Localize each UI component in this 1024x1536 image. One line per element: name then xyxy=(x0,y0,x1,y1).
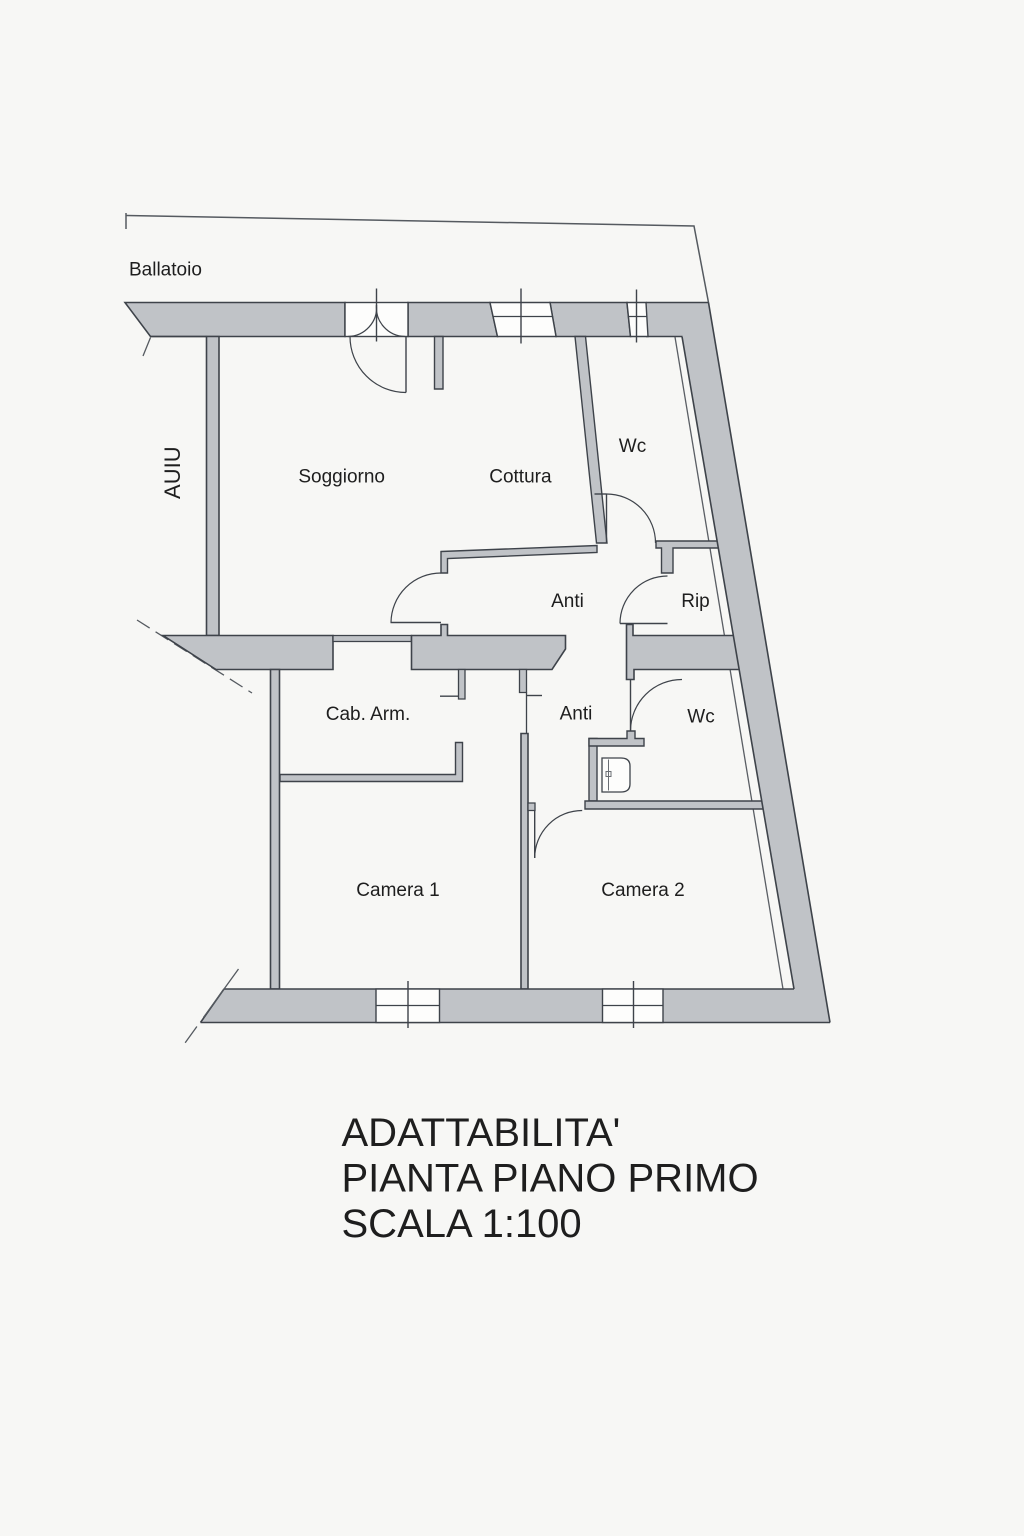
svg-text:Camera 2: Camera 2 xyxy=(601,880,684,901)
svg-text:Cottura: Cottura xyxy=(489,467,552,488)
svg-text:Anti: Anti xyxy=(551,591,584,612)
svg-text:Ballatoio: Ballatoio xyxy=(129,260,202,281)
svg-text:Cab. Arm.: Cab. Arm. xyxy=(326,704,410,725)
svg-text:Anti: Anti xyxy=(560,704,593,725)
svg-text:SCALA 1:100: SCALA 1:100 xyxy=(342,1202,582,1246)
svg-text:Soggiorno: Soggiorno xyxy=(298,467,385,488)
svg-text:ADATTABILITA': ADATTABILITA' xyxy=(342,1111,621,1155)
svg-text:Camera 1: Camera 1 xyxy=(356,880,439,901)
svg-text:Rip: Rip xyxy=(681,591,710,612)
svg-text:Wc: Wc xyxy=(687,707,714,728)
svg-text:Wc: Wc xyxy=(619,436,646,457)
svg-text:PIANTA PIANO PRIMO: PIANTA PIANO PRIMO xyxy=(342,1157,759,1201)
svg-text:AUIU: AUIU xyxy=(160,446,185,499)
